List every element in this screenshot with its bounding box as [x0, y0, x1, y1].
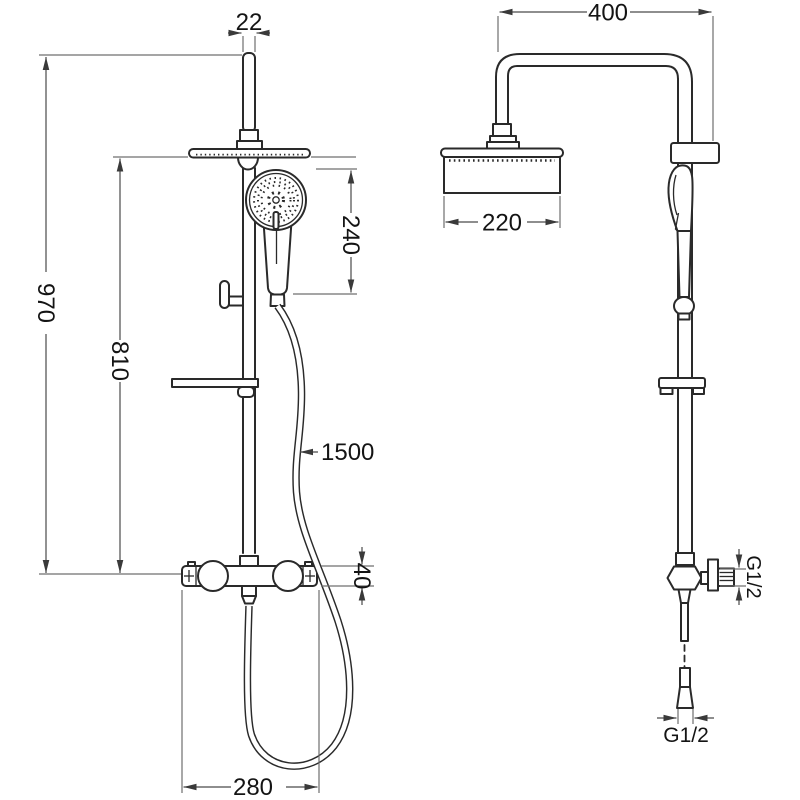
hose-end-connector-side	[677, 645, 693, 708]
dim-hose-length-label: 1500	[321, 439, 374, 466]
shelf-side	[659, 378, 705, 394]
soap-shelf-front	[172, 379, 258, 397]
wall-bracket-side	[671, 143, 719, 163]
dim-hose-length: 1500	[300, 439, 374, 466]
dim-pipe-width-label: 22	[236, 9, 263, 36]
inlet-flange	[708, 560, 718, 591]
dim-inlet-thread-label: G1/2	[742, 555, 764, 598]
dim-hose-thread: G1/2	[657, 709, 714, 747]
dimensions: 22 970 810 240 1500 40	[32, 0, 764, 800]
technical-drawing: 22 970 810 240 1500 40	[0, 0, 800, 800]
hose-cone-nut	[677, 687, 693, 708]
shower-hose	[247, 306, 349, 766]
shower-set-dimensional-drawing: 22 970 810 240 1500 40	[0, 0, 800, 800]
inlet-thread-nipple	[718, 569, 734, 587]
thermostat-valve-front	[182, 556, 317, 604]
valve-knob-left	[198, 561, 228, 591]
dim-head-width-label: 220	[482, 210, 522, 237]
valve-knob-right	[273, 561, 303, 591]
dim-arm-reach: 400	[498, 0, 713, 141]
dim-total-height-label: 970	[32, 283, 59, 323]
riser-pipe-top	[237, 53, 262, 149]
side-view	[441, 54, 734, 708]
dim-hand-shower-span-label: 240	[337, 215, 364, 255]
holder-ball	[674, 297, 694, 315]
dim-head-width: 220	[444, 196, 560, 237]
valve-hex-body	[668, 567, 702, 590]
rain-shower-head-front	[189, 149, 310, 170]
dim-hose-thread-label: G1/2	[663, 724, 709, 747]
rail-slider-knob	[220, 281, 243, 308]
rain-shower-head-side	[441, 124, 563, 193]
dim-rail-height-label: 810	[106, 341, 133, 381]
dim-total-height: 970	[32, 55, 242, 574]
valve-collar	[240, 556, 258, 566]
dim-arm-reach-label: 400	[588, 0, 628, 27]
hand-shower-handle-side	[678, 231, 692, 297]
dim-valve-width-label: 280	[233, 774, 273, 800]
hose-nipple	[271, 295, 285, 307]
dim-rail-height: 810	[106, 157, 356, 573]
dim-valve-height-label: 40	[348, 563, 375, 590]
slide-rail-pole	[243, 168, 255, 553]
front-view	[172, 53, 350, 766]
hand-shower-side	[668, 165, 694, 319]
inlet-valve-side	[668, 553, 735, 641]
dim-pipe-width: 22	[228, 9, 270, 52]
shower-arm-arch	[496, 54, 692, 124]
hand-shower-head-side	[668, 165, 692, 231]
